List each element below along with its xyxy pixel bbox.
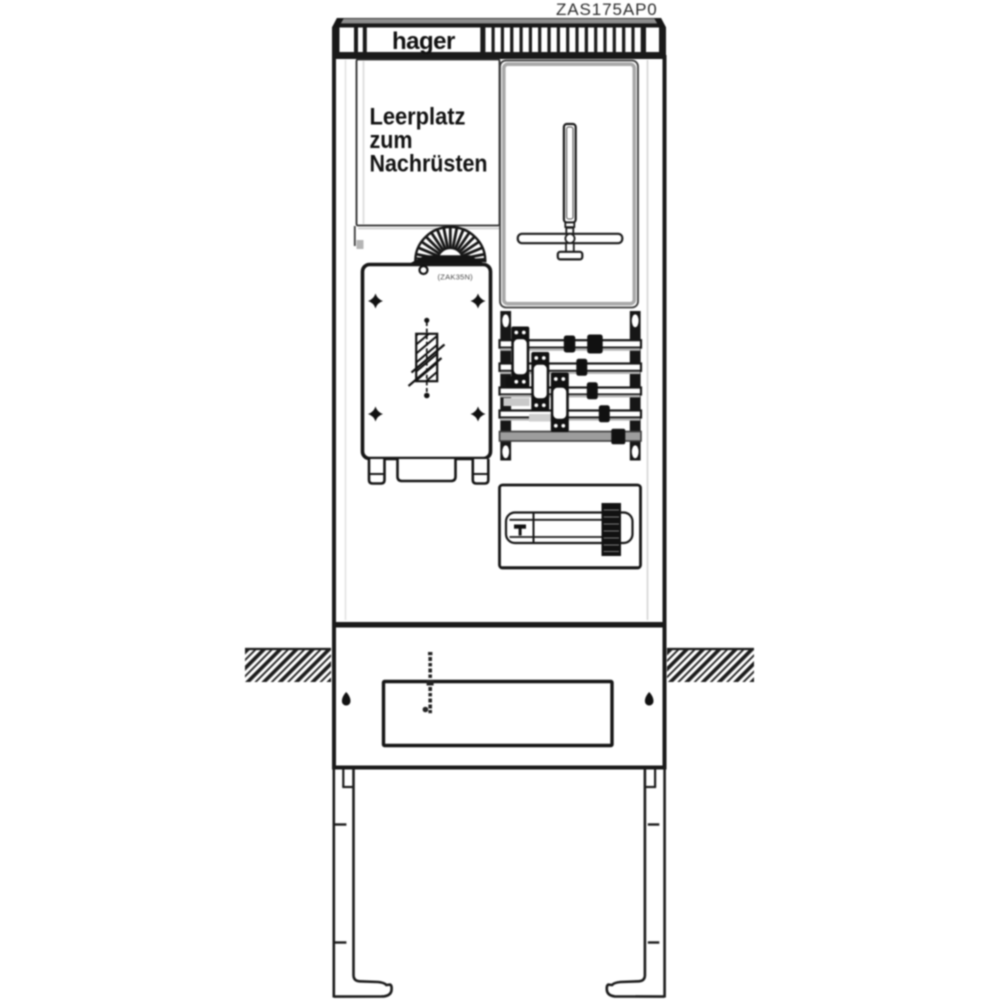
svg-text:(ZAK35N): (ZAK35N) xyxy=(438,273,474,282)
svg-text:hager: hager xyxy=(392,28,455,55)
svg-text:ZAS175AP0: ZAS175AP0 xyxy=(556,0,658,19)
svg-text:Nachrüsten: Nachrüsten xyxy=(370,151,488,178)
